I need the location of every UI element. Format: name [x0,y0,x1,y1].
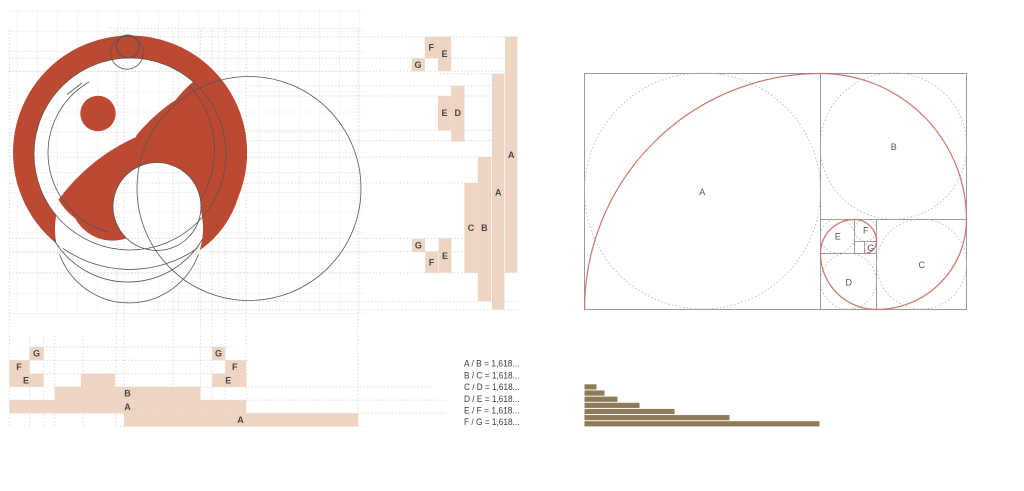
svg-text:C: C [919,260,926,270]
svg-text:G: G [415,240,422,250]
svg-text:E: E [442,251,448,261]
svg-text:C: C [468,223,475,233]
svg-text:G: G [215,349,222,359]
svg-text:B: B [124,389,131,399]
svg-text:F: F [232,362,238,372]
svg-text:A: A [699,187,706,197]
svg-text:A / B = 1,618...: A / B = 1,618... [464,358,520,369]
svg-text:F: F [863,226,869,236]
svg-text:A: A [124,402,131,412]
svg-text:E: E [23,375,29,385]
svg-text:D: D [846,278,853,288]
svg-text:A: A [237,415,244,425]
svg-text:E: E [441,108,447,118]
svg-text:E: E [835,232,842,242]
svg-text:F: F [428,43,434,53]
svg-text:D / E = 1,618...: D / E = 1,618... [464,393,520,404]
svg-text:A: A [508,150,515,160]
svg-text:E / F = 1,618...: E / F = 1,618... [464,405,520,416]
svg-text:E: E [441,49,447,59]
svg-text:G: G [33,349,40,359]
svg-text:F: F [429,258,435,268]
svg-text:A: A [495,188,502,198]
svg-text:G: G [414,60,421,70]
svg-text:F: F [16,362,22,372]
svg-text:B: B [891,142,898,152]
svg-text:E: E [225,375,231,385]
svg-text:D: D [455,108,462,118]
svg-text:B / C = 1,618...: B / C = 1,618... [464,369,520,380]
svg-text:G: G [867,243,875,253]
svg-text:C / D = 1,618...: C / D = 1,618... [464,381,520,392]
svg-text:F / G = 1,618...: F / G = 1,618... [464,416,520,427]
svg-text:B: B [481,223,488,233]
